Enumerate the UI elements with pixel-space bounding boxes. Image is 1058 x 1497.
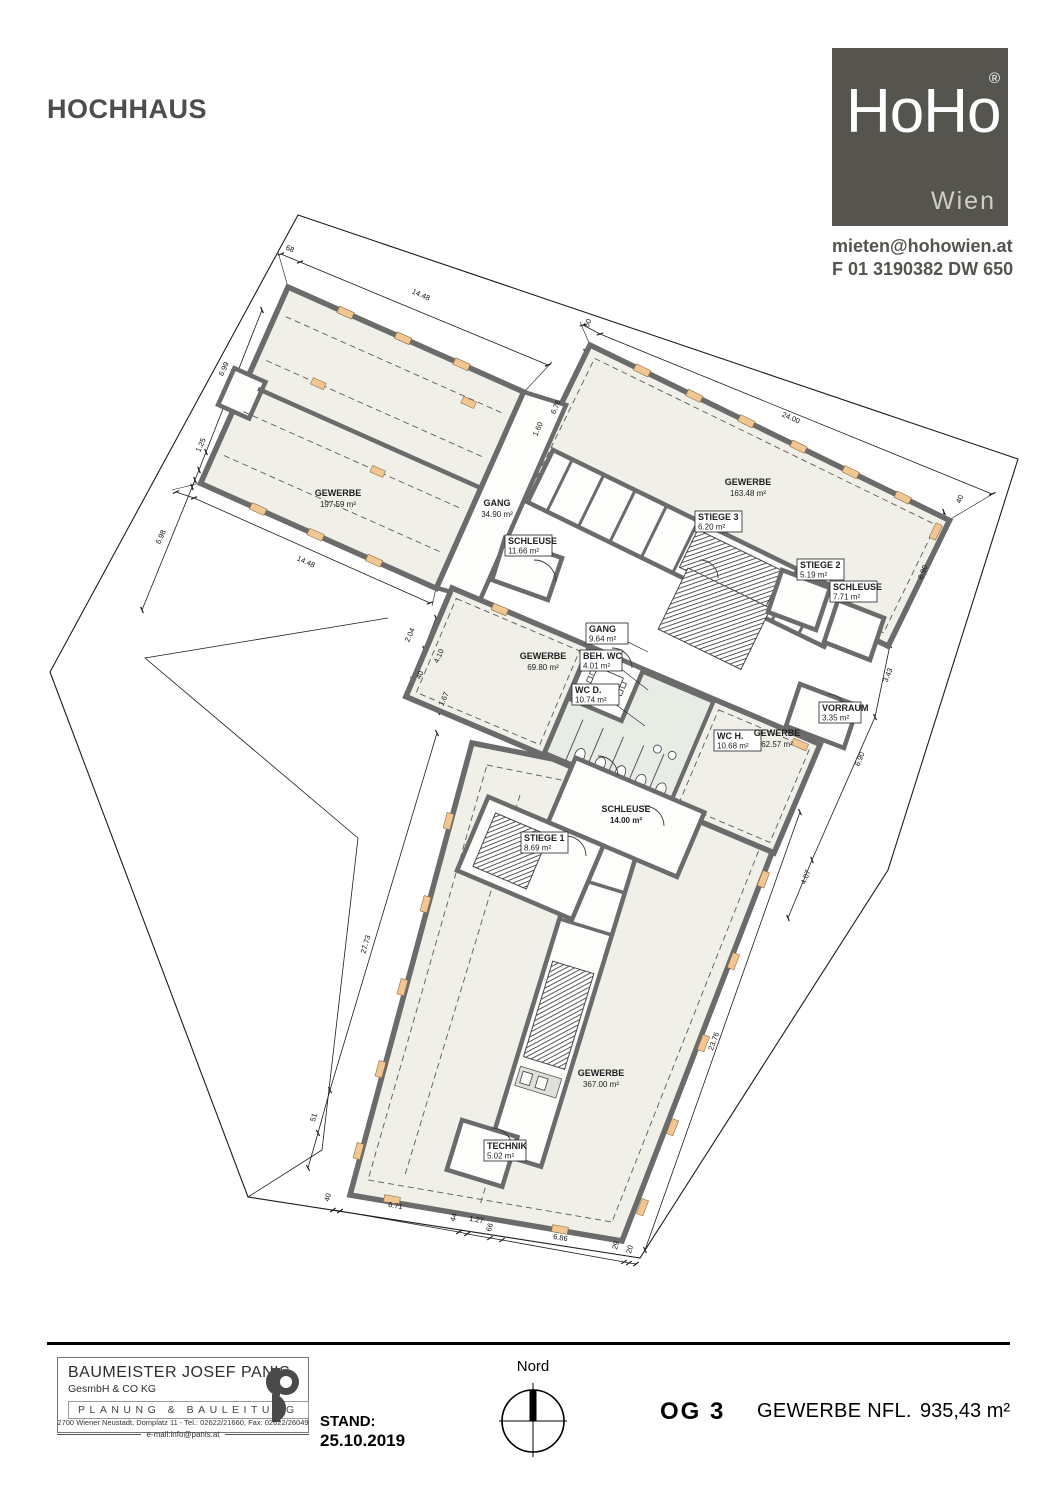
- stand-label: STAND:: [320, 1413, 405, 1430]
- svg-text:197.59 m²: 197.59 m²: [320, 500, 356, 509]
- svg-text:VORRAUM: VORRAUM: [822, 703, 869, 713]
- room-label: BEH. WC4.01 m²: [580, 650, 622, 671]
- room-label: SCHLEUSE11.66 m²: [505, 535, 557, 556]
- area-value: 935,43 m²: [920, 1400, 1010, 1423]
- floor-label: OG 3: [660, 1398, 725, 1426]
- svg-text:GEWERBE: GEWERBE: [578, 1068, 625, 1078]
- room-label: STIEGE 36.20 m²: [695, 511, 742, 532]
- svg-text:14.00 m²: 14.00 m²: [610, 816, 642, 825]
- dimension-label: 3.43: [881, 667, 895, 684]
- dimension-label: 4.07: [799, 869, 813, 886]
- room-label: STIEGE 25.19 m²: [797, 559, 844, 580]
- room-label: TECHNIK5.02 m²: [484, 1140, 527, 1161]
- dimension-label: 24.00: [781, 410, 802, 426]
- dimension-label: 2.04: [403, 626, 417, 643]
- svg-text:11.66 m²: 11.66 m²: [508, 547, 539, 556]
- north-label: Nord: [492, 1358, 574, 1375]
- dimension-label: 1.27: [468, 1214, 484, 1225]
- svg-text:3.35 m²: 3.35 m²: [822, 714, 849, 723]
- dimension-label: 40: [322, 1192, 333, 1203]
- svg-text:TECHNIK: TECHNIK: [487, 1141, 527, 1151]
- svg-text:62.57 m²: 62.57 m²: [761, 740, 793, 749]
- dimension-label: 40: [954, 494, 965, 505]
- svg-text:10.68 m²: 10.68 m²: [717, 742, 749, 751]
- svg-text:367.00 m²: 367.00 m²: [583, 1080, 619, 1089]
- svg-text:GEWERBE: GEWERBE: [754, 728, 801, 738]
- svg-text:WC H.: WC H.: [717, 731, 744, 741]
- svg-text:5.19 m²: 5.19 m²: [800, 571, 827, 580]
- svg-text:69.80 m²: 69.80 m²: [527, 663, 559, 672]
- svg-text:GEWERBE: GEWERBE: [520, 651, 567, 661]
- svg-text:GANG: GANG: [484, 498, 511, 508]
- drawing-sheet: HOCHHAUS HoHo ® Wien mieten@hohowien.at …: [0, 0, 1058, 1497]
- svg-text:7.71 m²: 7.71 m²: [833, 593, 860, 602]
- dimension-label: 14.48: [411, 287, 432, 303]
- footer-rule: [47, 1342, 1010, 1345]
- svg-text:10.74 m²: 10.74 m²: [575, 696, 607, 705]
- svg-text:GANG: GANG: [589, 624, 616, 634]
- svg-text:STIEGE 2: STIEGE 2: [800, 560, 841, 570]
- stand-block: STAND: 25.10.2019: [320, 1413, 405, 1451]
- dimension-label: 51: [308, 1112, 319, 1123]
- svg-text:SCHLEUSE: SCHLEUSE: [508, 536, 557, 546]
- north-indicator: Nord: [492, 1358, 574, 1464]
- firm-email-text: e-mail:info@panis.at: [146, 1430, 219, 1439]
- dimension-label: 66: [484, 1222, 495, 1233]
- firm-email: e-mail:info@panis.at: [57, 1430, 309, 1439]
- dimension-label: 68: [284, 243, 295, 255]
- firm-address: 2700 Wiener Neustadt, Domplatz 11 - Tel.…: [57, 1418, 309, 1439]
- firm-address-line: 2700 Wiener Neustadt, Domplatz 11 - Tel.…: [57, 1418, 308, 1427]
- svg-text:BEH. WC: BEH. WC: [583, 651, 622, 661]
- dimension-label: 27.73: [359, 934, 373, 955]
- room-label: WC D.10.74 m²: [572, 684, 619, 705]
- floor-plan: GEWERBE197.59 m²GANG34.90 m²SCHLEUSE11.6…: [0, 0, 1058, 1497]
- dimension-label: 14.48: [296, 554, 317, 570]
- svg-text:GEWERBE: GEWERBE: [725, 477, 772, 487]
- svg-text:WC D.: WC D.: [575, 685, 602, 695]
- svg-text:GEWERBE: GEWERBE: [315, 488, 362, 498]
- dimension-label: 1.25: [194, 436, 208, 453]
- jp-logo-icon: [250, 1366, 302, 1424]
- svg-text:6.20 m²: 6.20 m²: [698, 523, 725, 532]
- svg-text:STIEGE 3: STIEGE 3: [698, 512, 739, 522]
- dimension-label: 6.99: [217, 360, 231, 377]
- area-label: GEWERBE NFL.: [757, 1400, 912, 1423]
- svg-text:STIEGE 1: STIEGE 1: [524, 833, 565, 843]
- dimension-label: 6.86: [552, 1232, 568, 1243]
- compass-icon: [492, 1375, 574, 1459]
- svg-text:34.90 m²: 34.90 m²: [481, 510, 513, 519]
- svg-text:4.01 m²: 4.01 m²: [583, 662, 610, 671]
- svg-text:SCHLEUSE: SCHLEUSE: [833, 582, 882, 592]
- room-label: GANG9.64 m²: [586, 623, 628, 644]
- dimension-label: 20: [624, 1244, 635, 1255]
- svg-text:9.64 m²: 9.64 m²: [589, 635, 616, 644]
- room-label: STIEGE 18.69 m²: [521, 832, 568, 853]
- stand-date: 25.10.2019: [320, 1431, 405, 1451]
- dimension-label: 6.90: [853, 751, 867, 768]
- dimension-label: 6.98: [154, 528, 168, 545]
- dimension-label: 50: [582, 317, 594, 328]
- svg-text:SCHLEUSE: SCHLEUSE: [601, 804, 650, 814]
- room-label: VORRAUM3.35 m²: [819, 702, 869, 723]
- room-label: SCHLEUSE7.71 m²: [830, 581, 882, 602]
- svg-text:8.69 m²: 8.69 m²: [524, 844, 551, 853]
- svg-text:163.48 m²: 163.48 m²: [730, 489, 766, 498]
- svg-text:5.02 m²: 5.02 m²: [487, 1152, 514, 1161]
- dimension-label: 6.71: [387, 1200, 403, 1211]
